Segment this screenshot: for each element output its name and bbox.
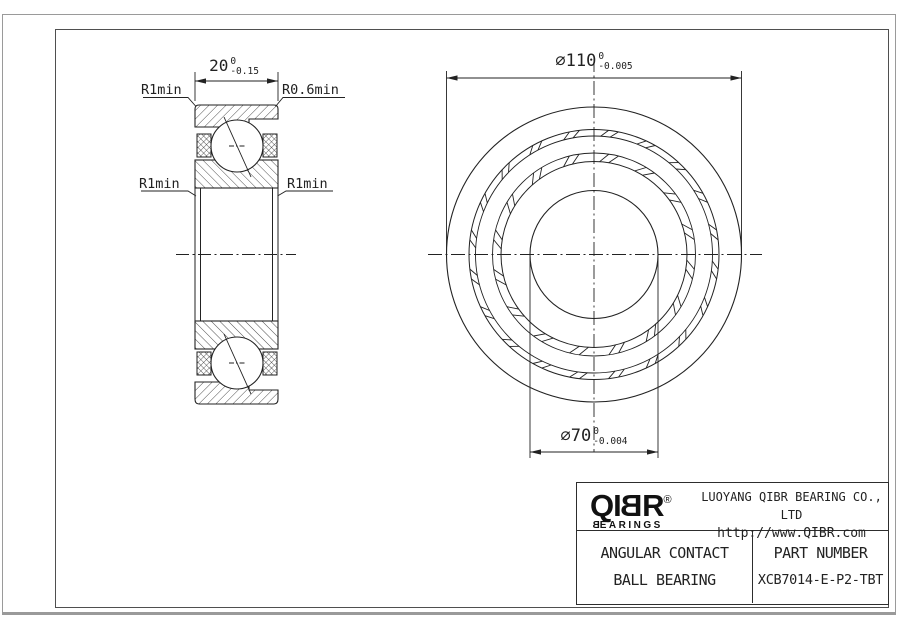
leader-label-mid-right: R1min [287,176,328,192]
part-number-value: XCB7014-E-P2-TBT [753,567,888,594]
leader-label-mid-left: R1min [139,176,180,192]
title-block: QIBR® BEARINGS LUOYANG QIBR BEARING CO.,… [576,482,889,605]
logo-text: QIBR® [590,486,695,520]
drawing-sheet: R1min R0.6min R1min R1min 20 0 -0.15 ⌀11… [0,0,900,636]
front-centerlines [428,58,762,452]
front-view [428,58,762,452]
diameter-symbol: ⌀ [555,52,565,71]
title-block-header-row: QIBR® BEARINGS LUOYANG QIBR BEARING CO.,… [577,483,888,531]
registered-mark: ® [664,494,672,506]
leader-label-top-right: R0.6min [282,82,339,98]
product-type-line2: BALL BEARING [577,567,752,594]
part-number-label: PART NUMBER [753,540,888,567]
width-dimension-text: 20 0 -0.15 [209,57,259,76]
od-dimension-text: ⌀110 0 -0.005 [555,52,632,71]
bore-tolerance: 0 -0.004 [593,427,627,446]
section-view [176,105,296,404]
company-name: LUOYANG QIBR BEARING CO., LTD [695,488,888,524]
od-tolerance: 0 -0.005 [598,52,632,71]
product-type-cell: ANGULAR CONTACT BALL BEARING [577,531,753,603]
bore-dimension-text: ⌀70 0 -0.004 [560,427,627,446]
leader-label-top-left: R1min [141,82,182,98]
product-type-line1: ANGULAR CONTACT [577,540,752,567]
logo-subtext: BEARINGS [590,520,695,531]
company-logo: QIBR® BEARINGS [577,483,695,530]
part-number-cell: PART NUMBER XCB7014-E-P2-TBT [753,531,888,603]
title-block-detail-row: ANGULAR CONTACT BALL BEARING PART NUMBER… [577,531,888,603]
width-tolerance: 0 -0.15 [230,57,259,76]
diameter-symbol: ⌀ [560,427,570,446]
company-info: LUOYANG QIBR BEARING CO., LTD http://www… [695,483,888,530]
